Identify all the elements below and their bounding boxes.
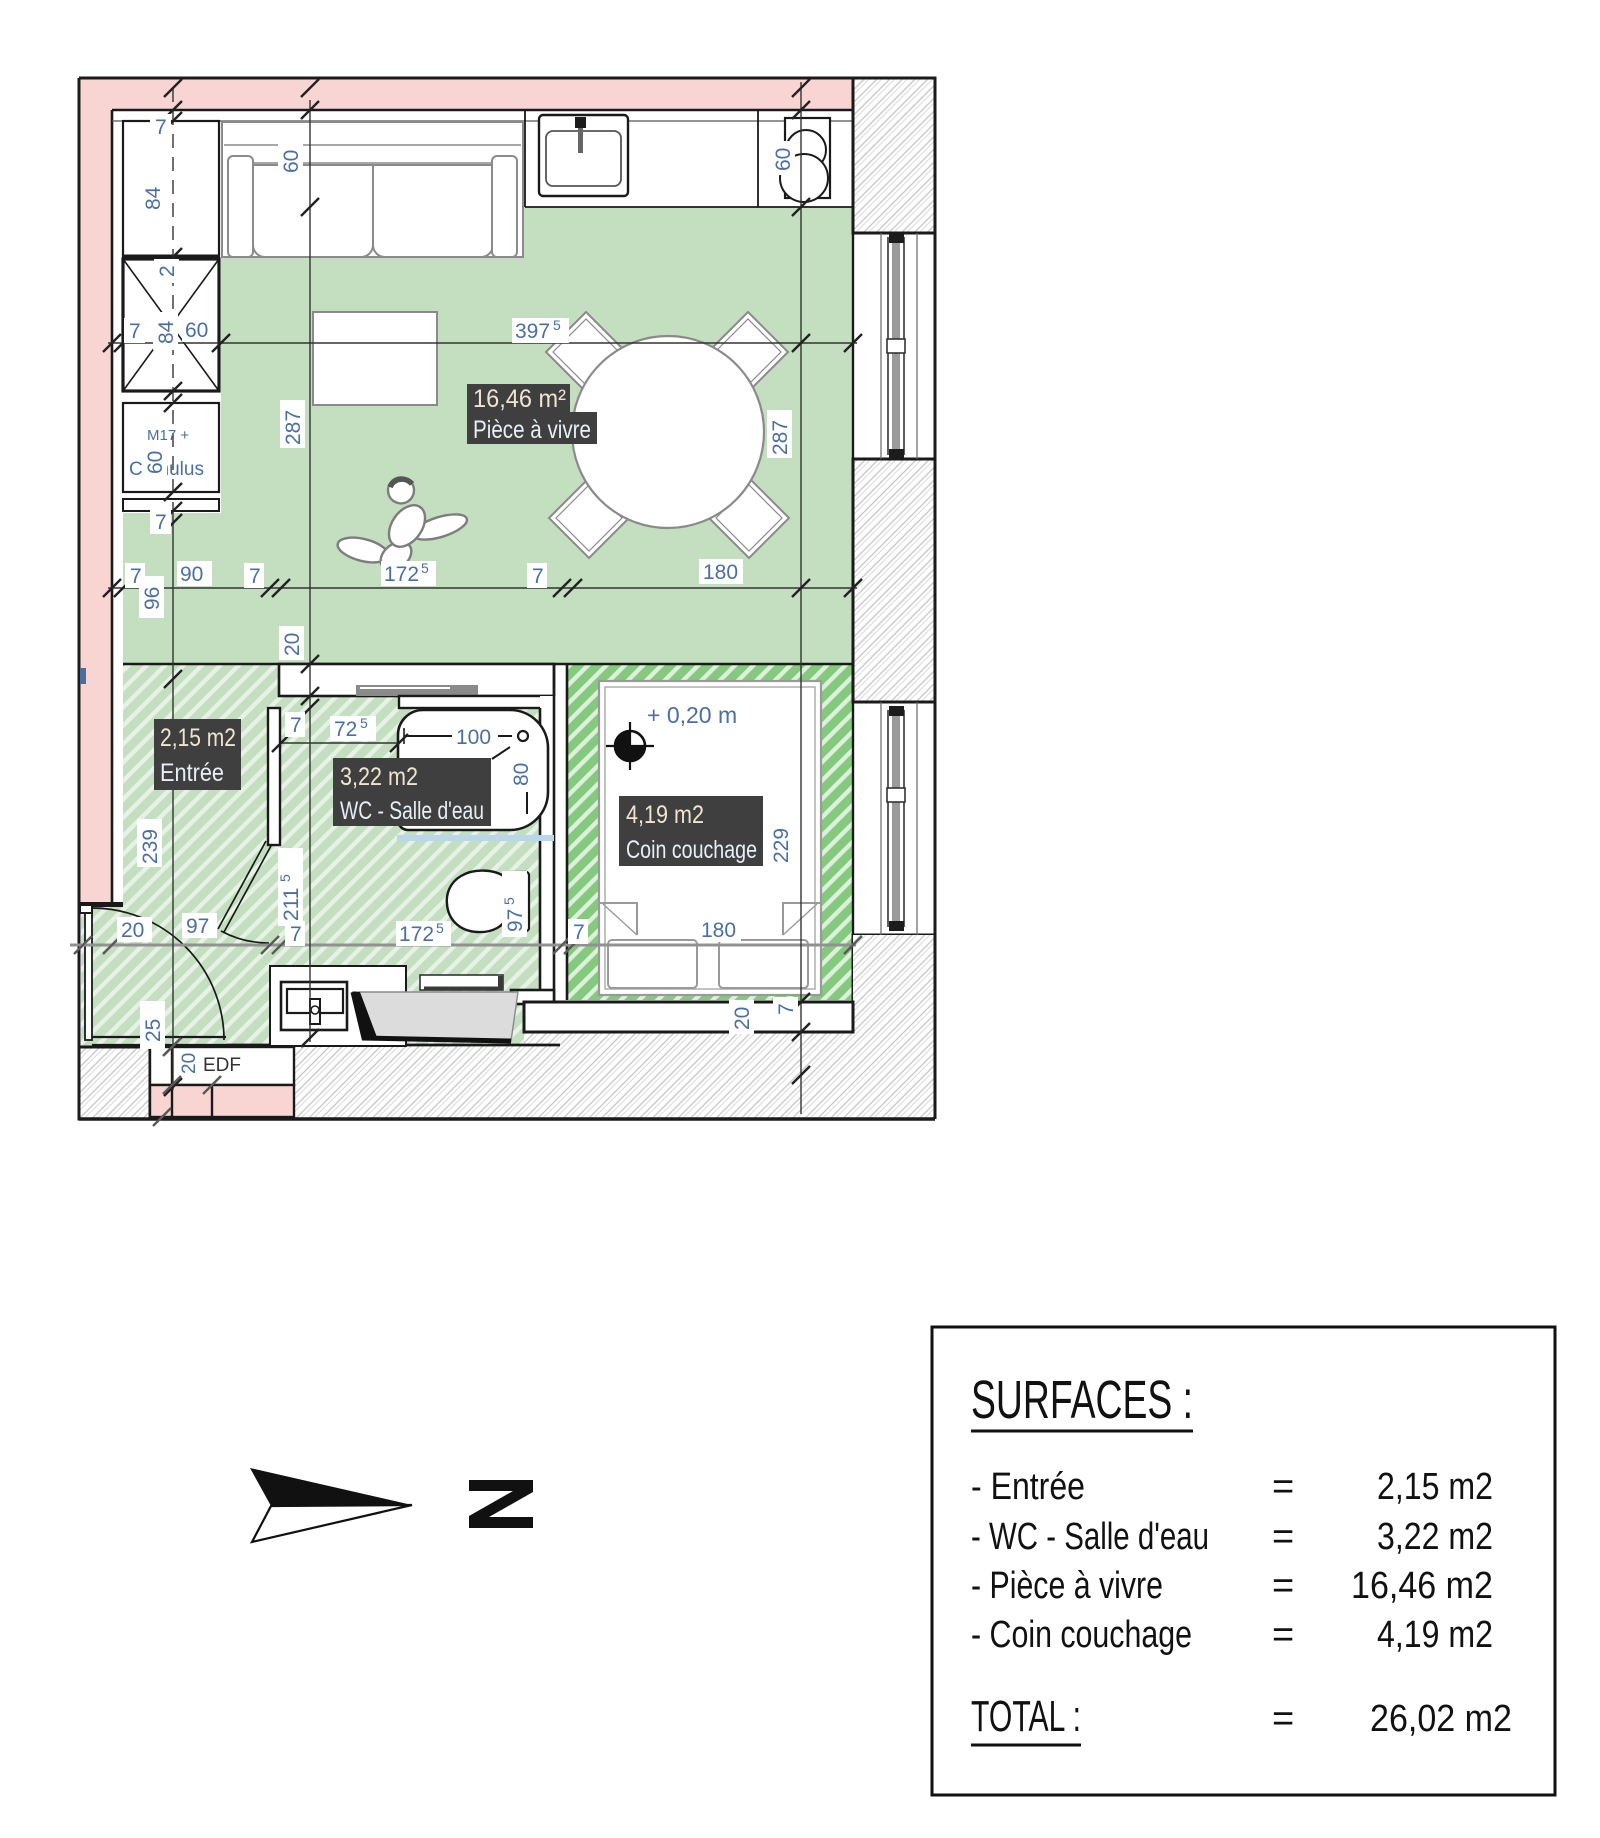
svg-text:EDF: EDF bbox=[203, 1055, 241, 1076]
svg-text:7: 7 bbox=[129, 320, 141, 343]
svg-text:20: 20 bbox=[179, 1053, 200, 1074]
svg-text:=: = bbox=[1272, 1565, 1294, 1607]
svg-text:- Entrée: - Entrée bbox=[971, 1466, 1085, 1508]
svg-text:TOTAL :: TOTAL : bbox=[971, 1692, 1081, 1741]
svg-text:- WC - Salle d'eau: - WC - Salle d'eau bbox=[971, 1516, 1209, 1558]
svg-text:180: 180 bbox=[701, 919, 736, 942]
svg-text:16,46 m2: 16,46 m2 bbox=[1351, 1565, 1493, 1607]
svg-text:84: 84 bbox=[142, 186, 165, 210]
svg-text:90: 90 bbox=[180, 563, 203, 586]
svg-text:80: 80 bbox=[510, 763, 533, 786]
svg-text:7: 7 bbox=[290, 714, 302, 737]
svg-text:3,22 m2: 3,22 m2 bbox=[340, 763, 418, 791]
svg-text:229: 229 bbox=[770, 828, 793, 863]
svg-text:26,02 m2: 26,02 m2 bbox=[1370, 1698, 1512, 1740]
svg-text:7: 7 bbox=[249, 565, 261, 588]
svg-text:239: 239 bbox=[139, 829, 162, 864]
svg-text:2,15 m2: 2,15 m2 bbox=[1377, 1466, 1493, 1508]
svg-text:5: 5 bbox=[421, 560, 429, 576]
svg-text:5: 5 bbox=[277, 874, 293, 882]
svg-text:60: 60 bbox=[185, 319, 208, 342]
svg-text:2,15 m2: 2,15 m2 bbox=[160, 724, 236, 752]
svg-text:5: 5 bbox=[501, 897, 517, 905]
svg-text:25: 25 bbox=[142, 1019, 165, 1042]
svg-text:7: 7 bbox=[532, 565, 544, 588]
svg-text:=: = bbox=[1272, 1614, 1294, 1656]
svg-text:5: 5 bbox=[360, 715, 368, 731]
svg-text:Pièce à vivre: Pièce à vivre bbox=[473, 416, 591, 444]
svg-text:96: 96 bbox=[141, 587, 164, 610]
svg-text:97: 97 bbox=[504, 909, 527, 932]
svg-text:72: 72 bbox=[334, 718, 357, 741]
svg-text:+ 0,20 m: + 0,20 m bbox=[647, 702, 737, 728]
svg-text:172: 172 bbox=[384, 563, 419, 586]
svg-text:=: = bbox=[1272, 1466, 1294, 1508]
svg-text:5: 5 bbox=[436, 920, 444, 936]
svg-text:7: 7 bbox=[573, 921, 585, 944]
svg-text:4,19 m2: 4,19 m2 bbox=[1377, 1614, 1493, 1656]
svg-text:2: 2 bbox=[156, 265, 179, 277]
svg-text:97: 97 bbox=[186, 915, 209, 938]
svg-text:Coin couchage: Coin couchage bbox=[626, 836, 757, 864]
svg-text:4,19 m2: 4,19 m2 bbox=[626, 801, 704, 829]
svg-text:172: 172 bbox=[399, 923, 434, 946]
svg-text:60: 60 bbox=[144, 451, 167, 474]
svg-text:60: 60 bbox=[280, 150, 303, 173]
svg-text:287: 287 bbox=[282, 410, 305, 445]
svg-text:SURFACES :: SURFACES : bbox=[971, 1370, 1193, 1430]
svg-text:287: 287 bbox=[769, 420, 792, 455]
svg-text:7: 7 bbox=[155, 116, 167, 139]
svg-text:60: 60 bbox=[772, 148, 795, 171]
svg-text:- Coin couchage: - Coin couchage bbox=[971, 1614, 1192, 1656]
svg-text:20: 20 bbox=[121, 919, 144, 942]
svg-text:20: 20 bbox=[281, 633, 304, 656]
svg-text:180: 180 bbox=[703, 561, 738, 584]
svg-text:7: 7 bbox=[290, 923, 302, 946]
svg-text:WC - Salle d'eau: WC - Salle d'eau bbox=[340, 797, 484, 825]
svg-text:5: 5 bbox=[553, 317, 561, 333]
svg-text:211: 211 bbox=[280, 888, 303, 921]
svg-text:7: 7 bbox=[775, 1003, 798, 1015]
svg-text:7: 7 bbox=[155, 511, 167, 534]
svg-text:3,22 m2: 3,22 m2 bbox=[1377, 1516, 1493, 1558]
svg-text:Entrée: Entrée bbox=[160, 759, 224, 787]
svg-text:M17 +: M17 + bbox=[147, 427, 189, 444]
svg-text:- Pièce à vivre: - Pièce à vivre bbox=[971, 1565, 1163, 1607]
svg-text:100: 100 bbox=[456, 726, 491, 749]
svg-text:16,46 m²: 16,46 m² bbox=[473, 385, 566, 413]
svg-text:=: = bbox=[1272, 1698, 1294, 1740]
svg-text:84: 84 bbox=[155, 320, 178, 344]
svg-text:=: = bbox=[1272, 1516, 1294, 1558]
svg-text:397: 397 bbox=[515, 320, 550, 343]
svg-text:20: 20 bbox=[731, 1007, 754, 1030]
